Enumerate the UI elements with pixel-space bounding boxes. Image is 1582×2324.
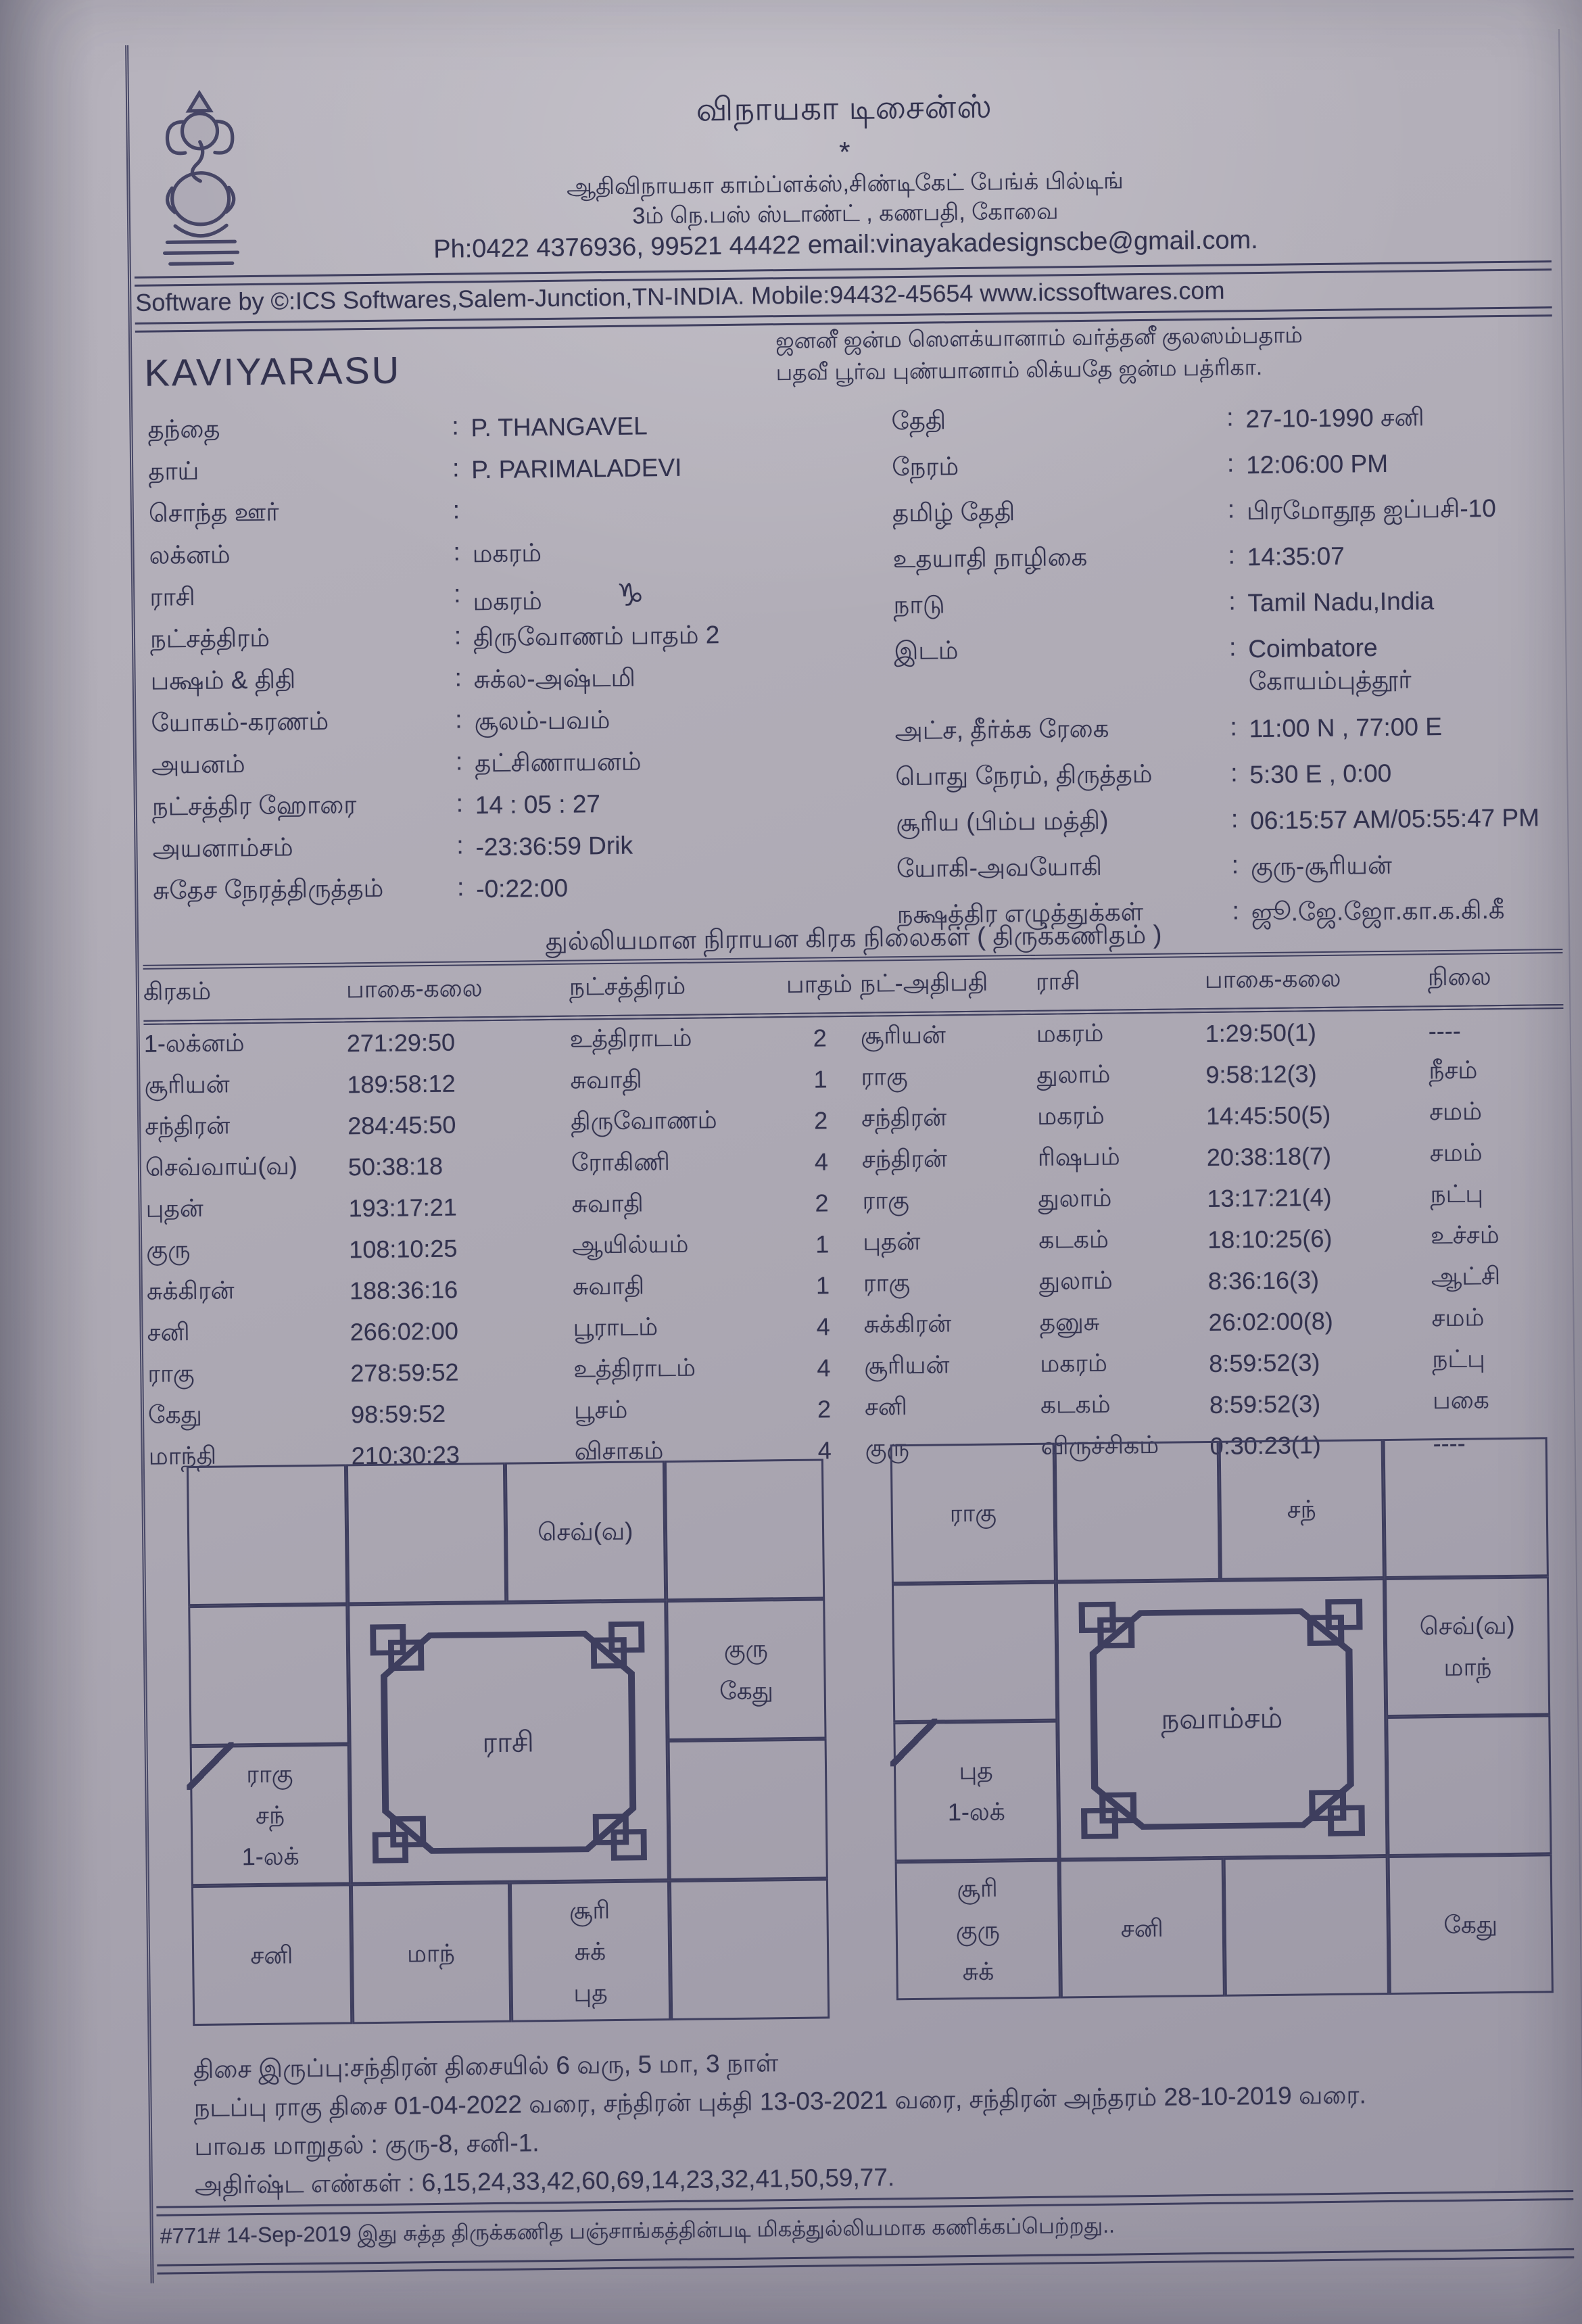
cell: 271:29:50 bbox=[346, 1018, 570, 1064]
cell: 278:59:52 bbox=[350, 1350, 574, 1394]
colon: : bbox=[1215, 449, 1246, 478]
detail-label: யோகி-அவயோகி bbox=[896, 851, 1220, 886]
rasi-chart-title: ராசி bbox=[482, 1718, 534, 1767]
detail-label: அயனம் bbox=[151, 748, 444, 783]
detail-value: 06:15:57 AM/05:55:47 PM bbox=[1250, 801, 1567, 837]
chart-cell bbox=[187, 1464, 347, 1606]
chart-cell: சனி bbox=[1059, 1857, 1225, 1998]
col-header: பாகை-கலை bbox=[1204, 953, 1428, 1011]
detail-value: 27-10-1990 சனி bbox=[1245, 400, 1562, 435]
cell: 1-லக்னம் bbox=[143, 1020, 347, 1066]
cell: சுக்கிரன் bbox=[147, 1270, 350, 1313]
detail-row: இடம்:Coimbatore கோயம்புத்தூர் bbox=[894, 630, 1565, 717]
chart-cell: செவ்(வ) மாந் bbox=[1385, 1576, 1550, 1717]
detail-value: P. THANGAVEL bbox=[471, 408, 868, 445]
cell: துலாம் bbox=[1036, 1054, 1206, 1097]
col-header: நிலை bbox=[1427, 951, 1563, 1008]
colon: : bbox=[444, 747, 475, 776]
detail-label: அயனாம்சம் bbox=[152, 832, 445, 867]
rasi-chart-center: ராசி bbox=[347, 1600, 669, 1884]
cell: ராகு bbox=[861, 1056, 1037, 1099]
cell: 1 bbox=[782, 1264, 864, 1306]
cell: சமம் bbox=[1429, 1091, 1565, 1134]
detail-label: ராசி bbox=[149, 580, 442, 615]
colon: : bbox=[439, 412, 471, 441]
detail-row: யோகி-அவயோகி:குரு-சூரியன் bbox=[896, 847, 1568, 901]
chart-cell bbox=[667, 1738, 828, 1880]
colon: : bbox=[1220, 851, 1251, 880]
detail-label: நட்சத்திரம் bbox=[150, 622, 443, 657]
cell: துலாம் bbox=[1039, 1260, 1209, 1304]
detail-value: திருவோணம் பாதம் 2 bbox=[473, 617, 871, 655]
detail-label: நாடு bbox=[893, 588, 1217, 623]
colon: : bbox=[1217, 633, 1248, 662]
dasa-summary: திசை இருப்பு:சந்திரன் திசையில் 6 வரு, 5 … bbox=[193, 2035, 1567, 2204]
cell: 4 bbox=[783, 1347, 865, 1389]
colon: : bbox=[442, 621, 473, 650]
chart-cell bbox=[1386, 1715, 1552, 1855]
cell: ஆயில்யம் bbox=[572, 1224, 782, 1268]
cell: 20:38:18(7) bbox=[1206, 1134, 1430, 1178]
col-header: நட்சத்திரம் bbox=[569, 960, 779, 1018]
chart-cell bbox=[892, 1582, 1057, 1722]
cell: சுவாதி bbox=[570, 1059, 780, 1103]
chart-cell bbox=[669, 1878, 830, 2020]
chart-cell: மாந் bbox=[350, 1882, 511, 2024]
detail-value: -23:36:59 Drik bbox=[475, 827, 873, 864]
navamsam-chart-center: நவாம்சம் bbox=[1056, 1578, 1388, 1859]
detail-value: மகரம்♑ bbox=[473, 575, 870, 620]
cell: திருவோணம் bbox=[571, 1100, 781, 1144]
col-header: ராசி bbox=[1035, 955, 1205, 1013]
detail-label: யோகம்-கரணம் bbox=[151, 706, 444, 741]
capricorn-icon: ♑ bbox=[616, 577, 644, 612]
rasi-chart: செவ்(வ) ராசி குரு கேது ராகு சந் 1-லக் bbox=[187, 1459, 830, 2026]
col-header: நட்-அதிபதி bbox=[859, 957, 1036, 1014]
cell: நட்பு bbox=[1430, 1174, 1566, 1216]
detail-label: பொது நேரம், திருத்தம் bbox=[895, 759, 1219, 795]
cell: 98:59:52 bbox=[351, 1392, 575, 1436]
chart-cell: சனி bbox=[191, 1884, 352, 2026]
detail-row: உதயாதி நாழிகை:14:35:07 bbox=[893, 538, 1564, 591]
detail-label: தேதி bbox=[891, 404, 1215, 439]
colon: : bbox=[442, 663, 473, 692]
cell: 9:58:12(3) bbox=[1205, 1051, 1429, 1095]
chart-cell: கேது bbox=[1388, 1854, 1554, 1995]
detail-row: சுதேச நேரத்திருத்தம்:-0:22:00 bbox=[153, 869, 873, 919]
cell: 188:36:16 bbox=[350, 1268, 573, 1312]
colon: : bbox=[444, 831, 475, 860]
cell: 266:02:00 bbox=[350, 1309, 573, 1353]
detail-row: பொது நேரம், திருத்தம்:5:30 E , 0:00 bbox=[895, 755, 1566, 809]
col-header: கிரகம் bbox=[143, 965, 347, 1022]
detail-row: நாடு:Tamil Nadu,India bbox=[893, 584, 1564, 637]
cell: தனுசு bbox=[1039, 1302, 1209, 1345]
cell: ---- bbox=[1428, 1006, 1564, 1051]
planet-positions-table: கிரகம் பாகை-கலை நட்சத்திரம் பாதம் நட்-அத… bbox=[143, 949, 1568, 1479]
colon: : bbox=[1218, 713, 1249, 742]
document-frame: விநாயகா டிசைன்ஸ் * ஆதிவிநாயகா காம்ப்ளக்ஸ… bbox=[125, 29, 1582, 2283]
cell: சந்திரன் bbox=[862, 1139, 1038, 1182]
colon: : bbox=[1214, 403, 1245, 432]
chart-cell: சூரி குரு சுக் bbox=[895, 1859, 1061, 2000]
colon: : bbox=[445, 873, 476, 902]
detail-value: சுக்ல-அஷ்டமி bbox=[473, 659, 871, 696]
detail-value: Coimbatore கோயம்புத்தூர் bbox=[1248, 630, 1565, 698]
colon: : bbox=[1216, 541, 1247, 570]
detail-label: உதயாதி நாழிகை bbox=[893, 542, 1217, 577]
detail-value: தட்சிணாயனம் bbox=[475, 743, 872, 780]
cell: 14:45:50(5) bbox=[1206, 1093, 1430, 1137]
detail-label: லக்னம் bbox=[149, 538, 441, 573]
detail-label: நேரம் bbox=[892, 450, 1216, 485]
detail-label: நட்சத்திர ஹோரை bbox=[152, 790, 445, 825]
cell: சுவாதி bbox=[573, 1265, 783, 1309]
detail-label: தமிழ் தேதி bbox=[892, 496, 1216, 531]
cell: மகரம் bbox=[1036, 1011, 1205, 1056]
detail-row: அட்ச, தீர்க்க ரேகை:11:00 N , 77:00 E bbox=[894, 709, 1566, 763]
divider bbox=[157, 2248, 1574, 2275]
cell: 2 bbox=[779, 1014, 861, 1059]
cell: 1 bbox=[780, 1058, 861, 1100]
cell: சந்திரன் bbox=[145, 1105, 348, 1148]
colon: : bbox=[441, 579, 473, 609]
colon: : bbox=[441, 538, 472, 567]
cell: உத்திராடம் bbox=[569, 1016, 780, 1062]
cell: கடகம் bbox=[1040, 1384, 1210, 1427]
chart-cell: குரு கேது bbox=[666, 1598, 827, 1740]
cell: 2 bbox=[781, 1182, 863, 1224]
cell: ரிஷபம் bbox=[1037, 1137, 1207, 1180]
detail-value: மகரம் bbox=[472, 533, 869, 571]
cell: 4 bbox=[782, 1306, 864, 1348]
cell: 193:17:21 bbox=[348, 1185, 572, 1229]
cell: சூரியன் bbox=[144, 1064, 347, 1107]
cell: ராகு bbox=[147, 1352, 351, 1396]
detail-value: 11:00 N , 77:00 E bbox=[1249, 709, 1566, 745]
detail-label: அட்ச, தீர்க்க ரேகை bbox=[894, 713, 1218, 749]
native-name: KAVIYARASU bbox=[144, 348, 401, 394]
cell: சமம் bbox=[1429, 1133, 1565, 1175]
cell: கேது bbox=[148, 1394, 352, 1437]
cell: சுவாதி bbox=[571, 1183, 782, 1227]
cell: பூராடம் bbox=[573, 1306, 783, 1350]
cell: மகரம் bbox=[1037, 1095, 1207, 1139]
cell: கடகம் bbox=[1038, 1219, 1208, 1262]
cell: சனி bbox=[865, 1386, 1041, 1429]
detail-row: நேரம்:12:06:00 PM bbox=[892, 446, 1563, 499]
col-header: பாதம் bbox=[778, 959, 860, 1015]
detail-row: தமிழ் தேதி:பிரமோதூத ஐப்பசி-10 bbox=[892, 492, 1564, 545]
chart-cell bbox=[188, 1604, 349, 1746]
cell: 8:59:52(3) bbox=[1209, 1340, 1433, 1384]
colon: : bbox=[1216, 495, 1247, 524]
navamsam-chart: ராகு சந் நவாம்சம் செவ்(வ) மாந் புத bbox=[890, 1437, 1554, 2000]
detail-label: சொந்த ஊர் bbox=[149, 496, 441, 531]
detail-label: தந்தை bbox=[147, 412, 440, 448]
chart-cell-lagna: ராகு சந் 1-லக் bbox=[190, 1744, 351, 1886]
cell: 4 bbox=[781, 1141, 863, 1183]
cell: செவ்வாய்(வ) bbox=[145, 1146, 349, 1189]
cell: ஆட்சி bbox=[1431, 1256, 1567, 1299]
col-header: பாகை-கலை bbox=[346, 962, 570, 1020]
cell: 8:36:16(3) bbox=[1208, 1258, 1432, 1302]
navamsam-chart-title: நவாம்சம் bbox=[1161, 1694, 1283, 1743]
cell: ராகு bbox=[862, 1180, 1038, 1223]
detail-label: சுதேச நேரத்திருத்தம் bbox=[153, 874, 446, 909]
rasi-value: மகரம் bbox=[473, 587, 542, 615]
chart-cell bbox=[1383, 1437, 1549, 1578]
detail-value: சூலம்-பவம் bbox=[474, 701, 871, 738]
detail-value: பிரமோதூத ஐப்பசி-10 bbox=[1247, 492, 1564, 527]
cell: 1 bbox=[782, 1223, 863, 1265]
detail-value: 14 : 05 : 27 bbox=[475, 785, 873, 822]
colon: : bbox=[441, 496, 472, 525]
cell: புதன் bbox=[145, 1187, 349, 1231]
cell: ரோகிணி bbox=[571, 1141, 782, 1185]
colon: : bbox=[1218, 759, 1249, 788]
cell: 18:10:25(6) bbox=[1207, 1216, 1431, 1260]
chart-cell: செவ்(வ) bbox=[505, 1461, 666, 1603]
cell: 2 bbox=[780, 1099, 862, 1141]
colon: : bbox=[443, 705, 474, 734]
detail-label: பக்ஷம் & திதி bbox=[151, 664, 444, 699]
cell: 108:10:25 bbox=[349, 1227, 573, 1271]
cell: மகரம் bbox=[1040, 1343, 1209, 1386]
cell: 1:29:50(1) bbox=[1205, 1008, 1429, 1054]
cell: 284:45:50 bbox=[347, 1103, 571, 1147]
horoscope-document-page: விநாயகா டிசைன்ஸ் * ஆதிவிநாயகா காம்ப்ளக்ஸ… bbox=[0, 0, 1582, 2324]
chart-cell: சந் bbox=[1219, 1439, 1385, 1580]
detail-value: -0:22:00 bbox=[476, 869, 873, 906]
cell: 2 bbox=[784, 1388, 865, 1430]
cell: 50:38:18 bbox=[348, 1144, 572, 1188]
cell: நட்பு bbox=[1432, 1339, 1568, 1381]
cell: 189:58:12 bbox=[347, 1062, 571, 1106]
detail-value: P. PARIMALADEVI bbox=[471, 450, 869, 487]
detail-label: சூரிய (பிம்ப மத்தி) bbox=[896, 805, 1220, 840]
cell: சுக்கிரன் bbox=[863, 1304, 1040, 1347]
cell: உத்திராடம் bbox=[573, 1348, 784, 1392]
chart-cell: ராகு bbox=[890, 1443, 1056, 1584]
birth-details-right: தேதி:27-10-1990 சனி நேரம்:12:06:00 PM தம… bbox=[891, 400, 1568, 947]
colon: : bbox=[1219, 805, 1250, 834]
colon: : bbox=[440, 454, 471, 483]
colon: : bbox=[444, 789, 475, 818]
cell: பூசம் bbox=[574, 1389, 784, 1433]
cell: 13:17:21(4) bbox=[1207, 1175, 1431, 1219]
detail-row: தேதி:27-10-1990 சனி bbox=[891, 400, 1562, 453]
cell: சூரியன் bbox=[864, 1345, 1040, 1388]
chart-cell bbox=[664, 1459, 825, 1600]
cell: புதன் bbox=[863, 1221, 1039, 1264]
colon: : bbox=[1216, 587, 1247, 616]
chart-cell-lagna: புத 1-லக் bbox=[893, 1721, 1059, 1861]
cell: குரு bbox=[146, 1229, 350, 1272]
cell: சனி bbox=[147, 1311, 350, 1354]
detail-value: Tamil Nadu,India bbox=[1247, 584, 1564, 619]
sanskrit-blessing: ஜனனீ ஜன்ம ஸௌக்யானாம் வர்த்தனீ குலஸம்பதாம… bbox=[775, 316, 1560, 388]
cell: ராகு bbox=[863, 1262, 1040, 1306]
cell: சந்திரன் bbox=[861, 1097, 1038, 1141]
chart-cell bbox=[345, 1463, 506, 1605]
serial-accuracy-note: #771# 14-Sep-2019 இது சுத்த திருக்கணித ப… bbox=[160, 2213, 1116, 2252]
chart-cell bbox=[1055, 1441, 1220, 1582]
cell: சமம் bbox=[1431, 1298, 1567, 1340]
detail-label: இடம் bbox=[894, 634, 1218, 669]
detail-value: 14:35:07 bbox=[1247, 538, 1564, 573]
detail-value: குரு-சூரியன் bbox=[1251, 847, 1568, 883]
cell: சூரியன் bbox=[860, 1012, 1036, 1058]
cell: உச்சம் bbox=[1431, 1215, 1566, 1258]
cell: 26:02:00(8) bbox=[1208, 1299, 1432, 1343]
detail-value: 5:30 E , 0:00 bbox=[1249, 755, 1566, 791]
cell: நீசம் bbox=[1429, 1050, 1564, 1093]
birth-details-left: தந்தை:P. THANGAVEL தாய்:P. PARIMALADEVI … bbox=[147, 408, 873, 919]
detail-value: 12:06:00 PM bbox=[1246, 446, 1563, 481]
detail-row: சூரிய (பிம்ப மத்தி):06:15:57 AM/05:55:47… bbox=[896, 801, 1567, 855]
cell: பகை bbox=[1433, 1380, 1568, 1423]
cell: 8:59:52(3) bbox=[1209, 1381, 1433, 1425]
chart-cell bbox=[1224, 1856, 1389, 1997]
chart-cell: சூரி சுக் புத bbox=[510, 1880, 671, 2022]
detail-label: தாய் bbox=[148, 454, 441, 490]
cell: துலாம் bbox=[1038, 1178, 1207, 1221]
